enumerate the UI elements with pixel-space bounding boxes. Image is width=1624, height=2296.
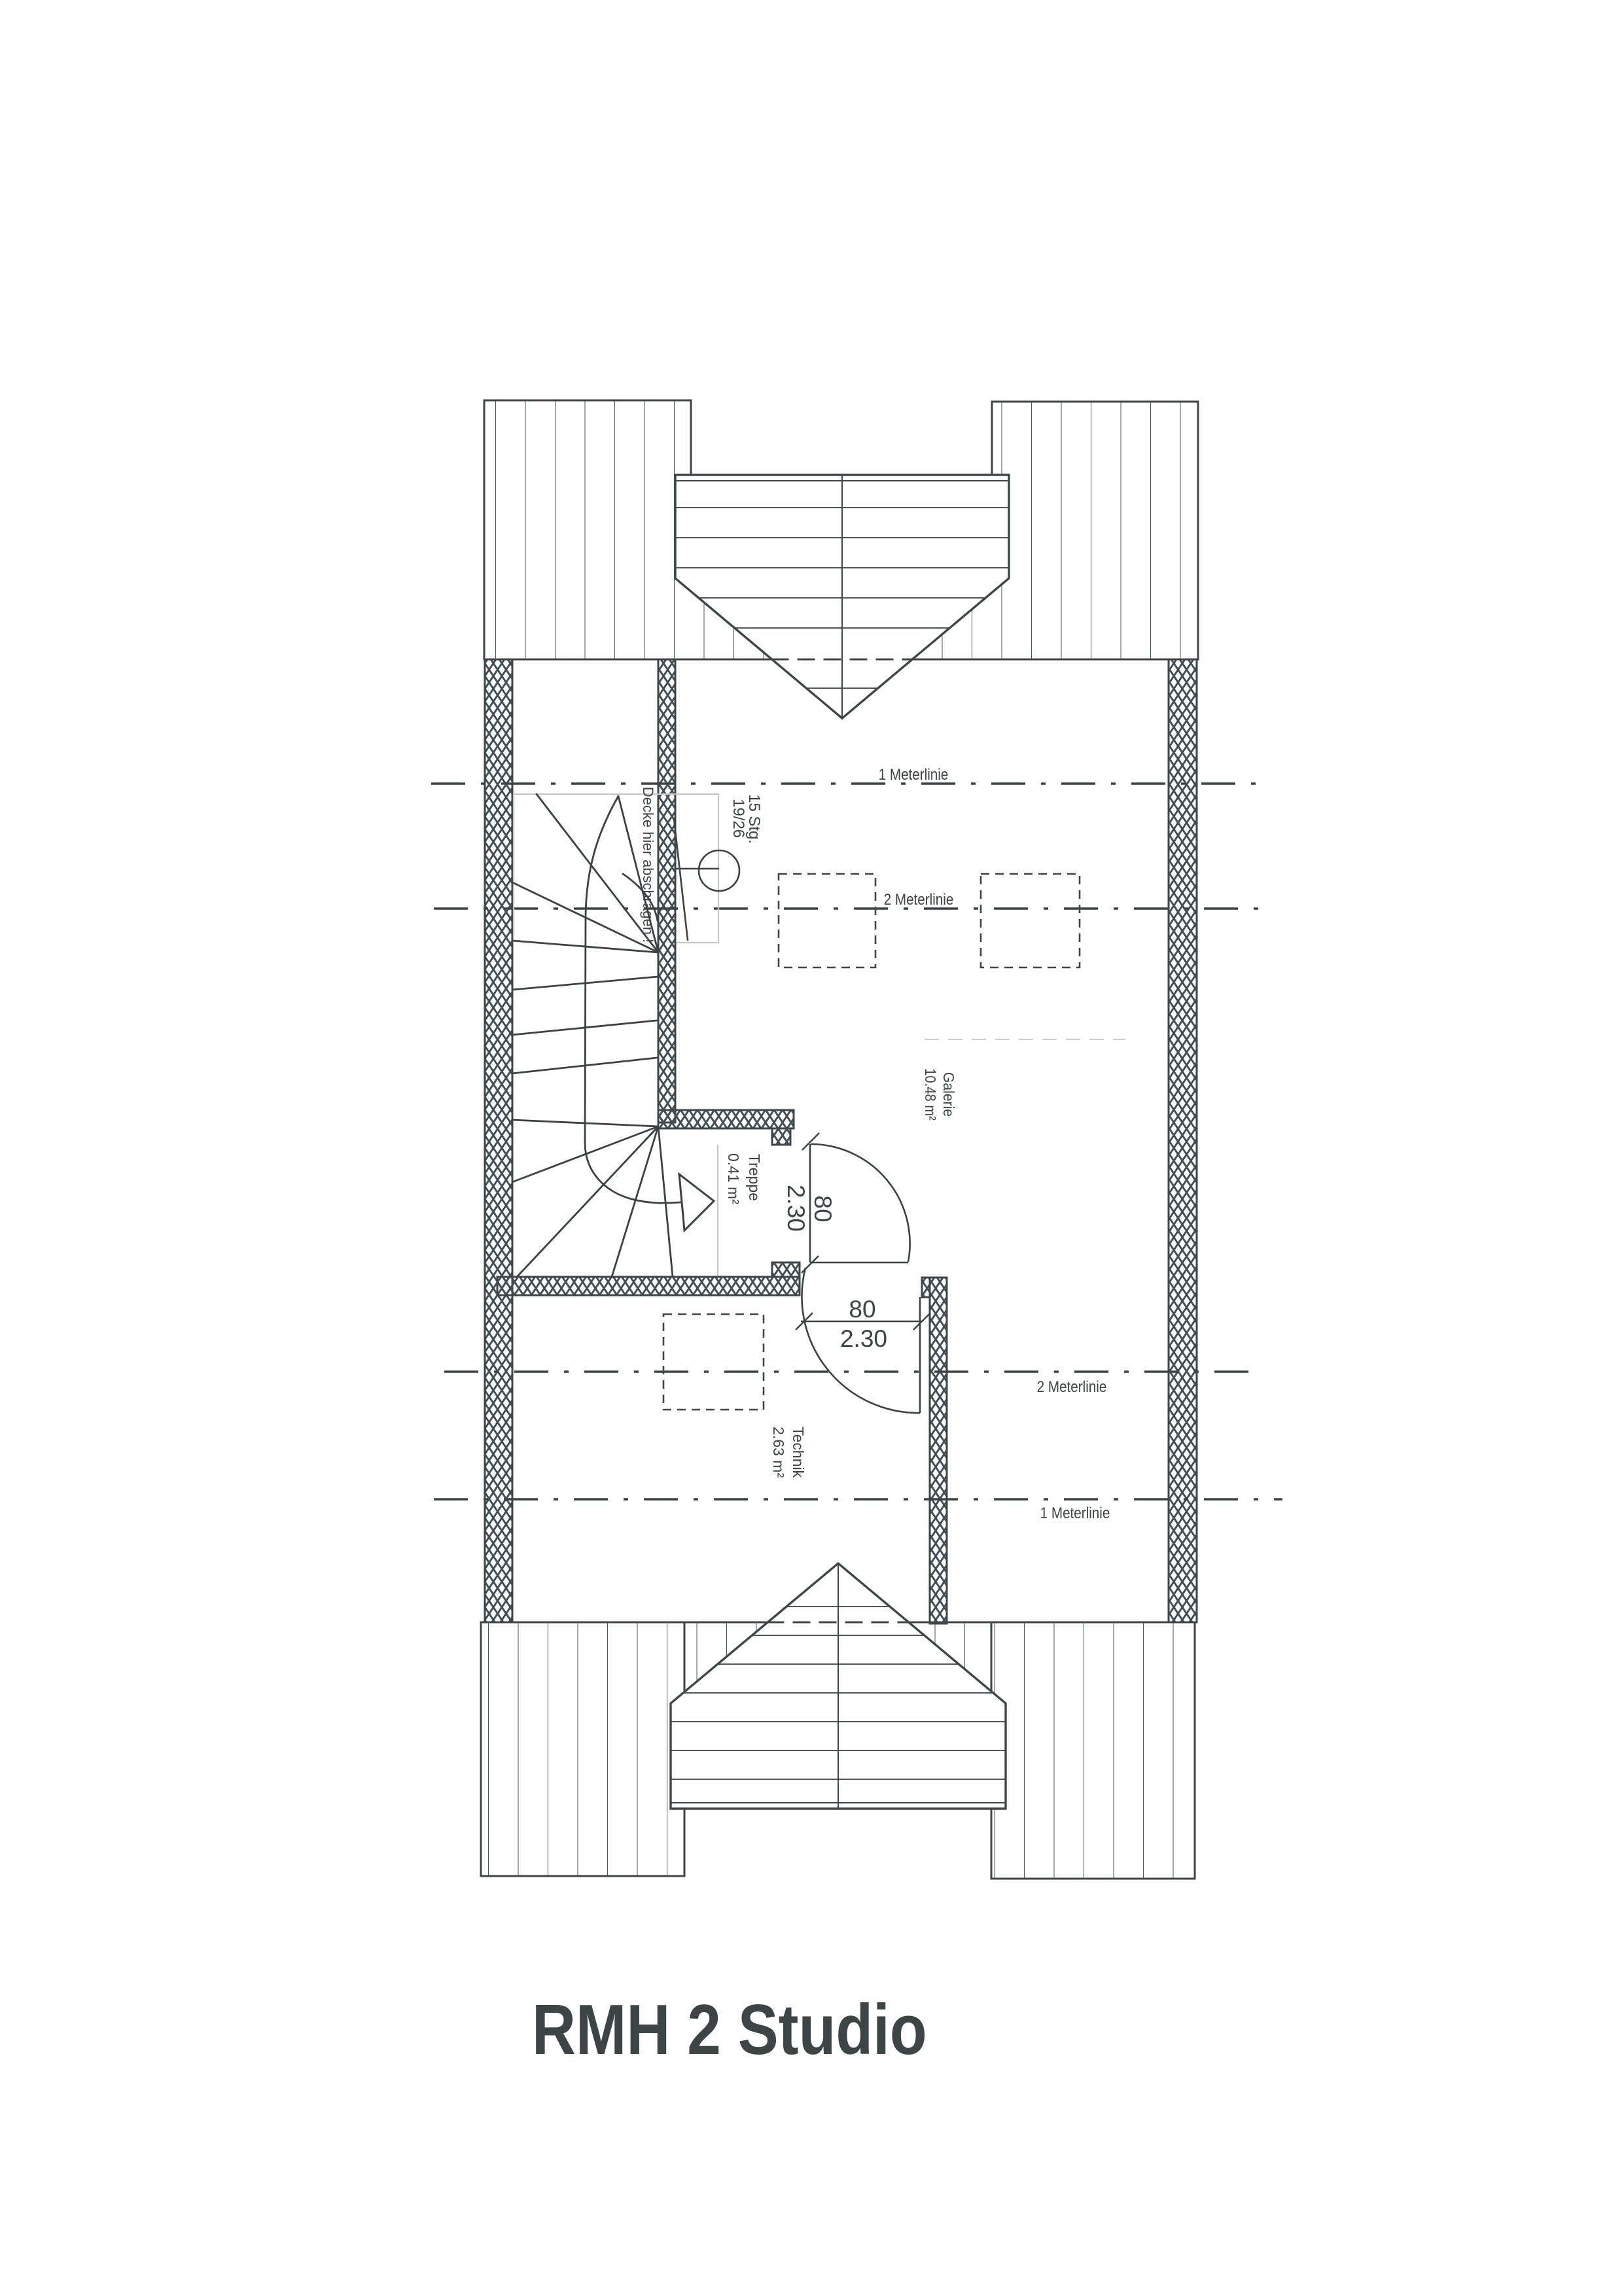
svg-text:2 Meterlinie: 2 Meterlinie <box>884 891 954 909</box>
svg-text:10.48 m²: 10.48 m² <box>922 1068 940 1121</box>
svg-text:0.41 m²: 0.41 m² <box>725 1153 742 1204</box>
svg-text:80: 80 <box>849 1296 875 1323</box>
svg-text:80: 80 <box>809 1195 836 1222</box>
svg-text:2 Meterlinie: 2 Meterlinie <box>1037 1378 1107 1396</box>
svg-text:Decke hier abschrägen !: Decke hier abschrägen ! <box>640 787 656 943</box>
svg-text:Technik: Technik <box>790 1427 807 1478</box>
svg-text:Galerie: Galerie <box>940 1072 957 1117</box>
svg-text:RMH 2 Studio: RMH 2 Studio <box>532 1990 927 2070</box>
svg-text:1 Meterlinie: 1 Meterlinie <box>879 766 949 784</box>
svg-text:1 Meterlinie: 1 Meterlinie <box>1040 1505 1110 1522</box>
svg-text:19/26: 19/26 <box>730 799 747 838</box>
svg-text:2.30: 2.30 <box>840 1325 887 1352</box>
svg-text:2.30: 2.30 <box>783 1185 809 1232</box>
svg-text:Treppe: Treppe <box>746 1154 763 1201</box>
svg-text:15 Stg.: 15 Stg. <box>745 794 763 844</box>
svg-text:2.63 m²: 2.63 m² <box>770 1427 787 1478</box>
